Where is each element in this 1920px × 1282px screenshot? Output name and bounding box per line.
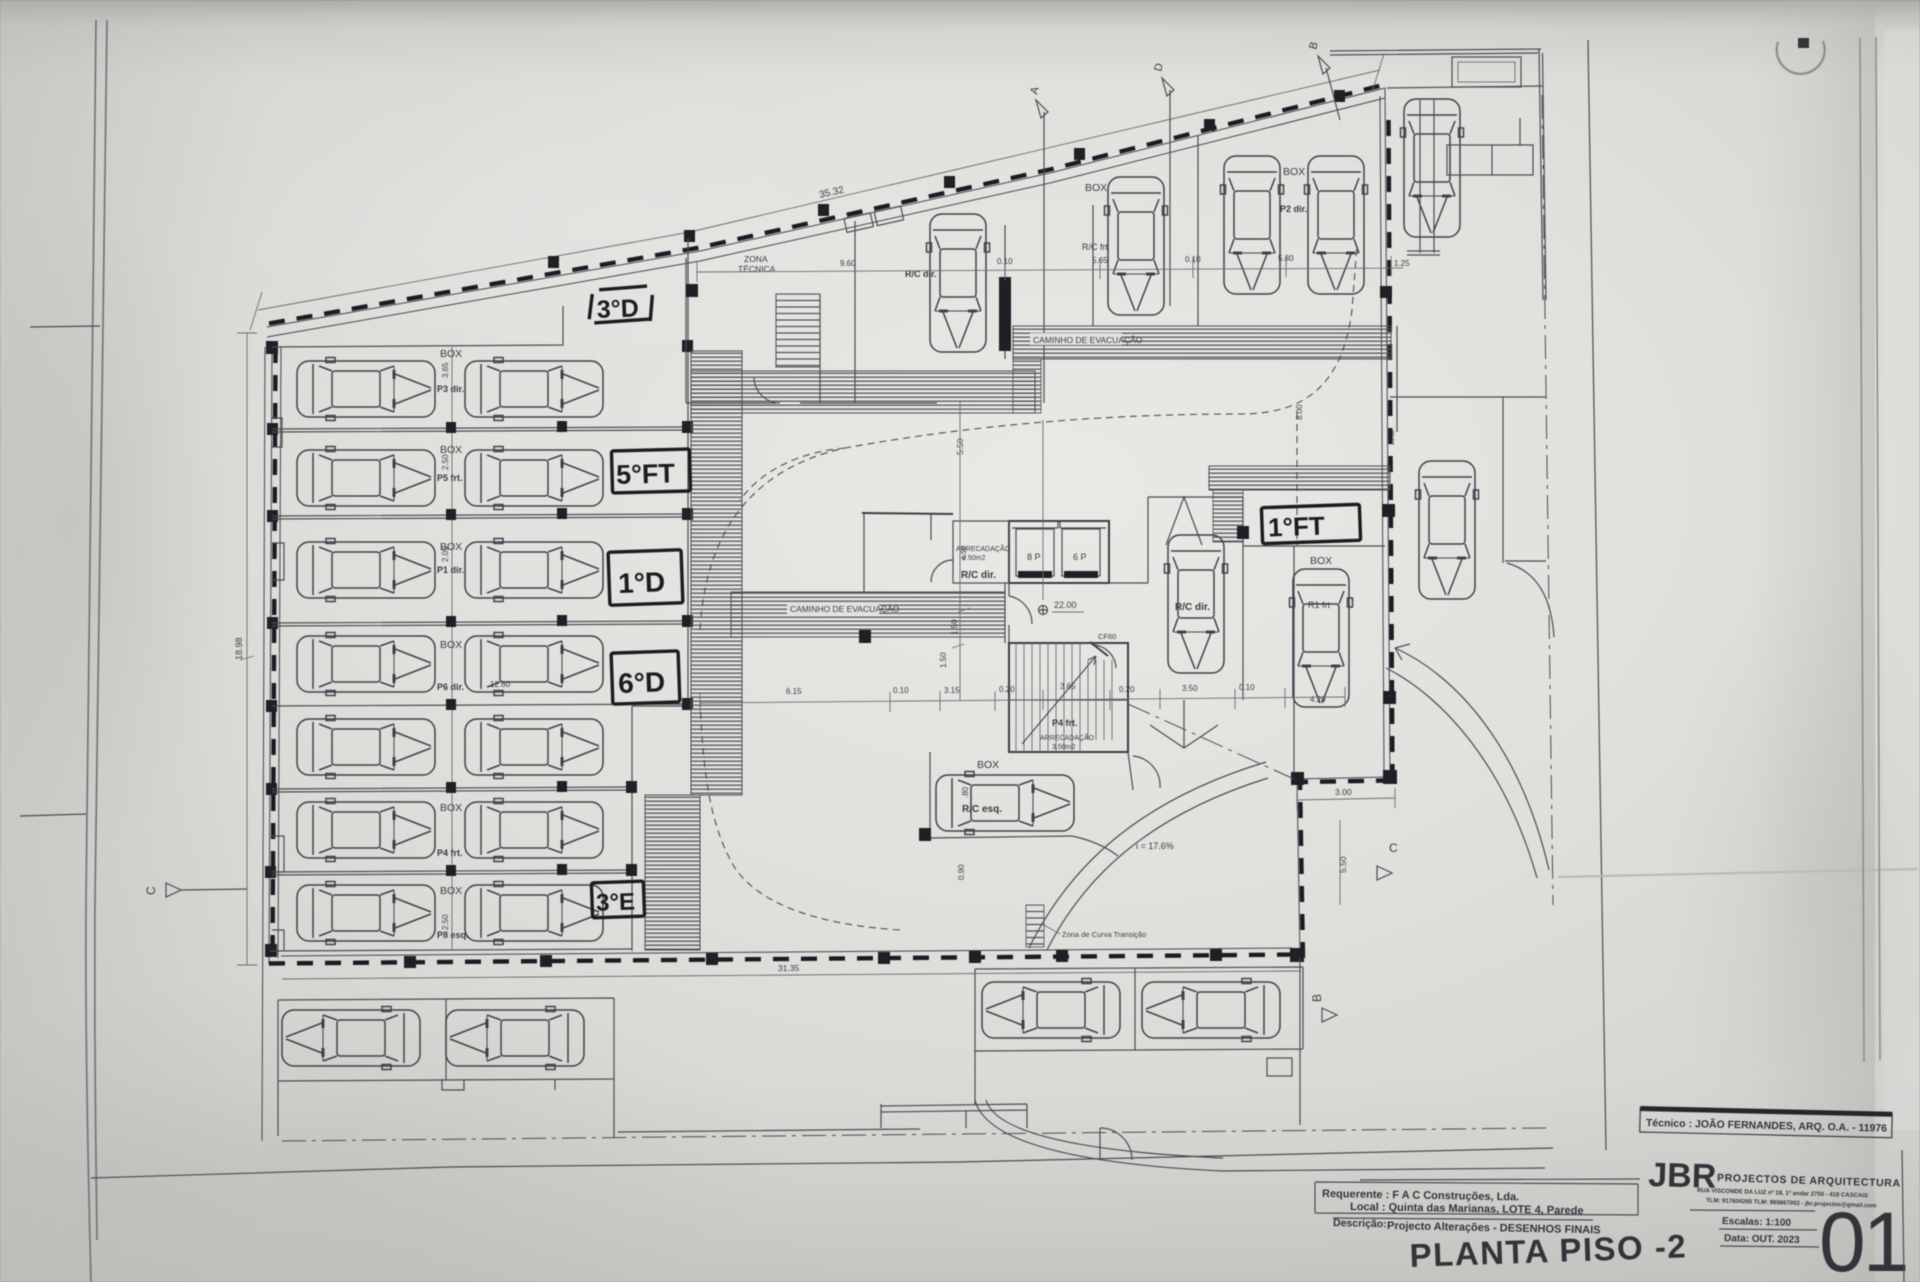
svg-text:BOX: BOX [440,639,462,651]
svg-text:3.65: 3.65 [1060,682,1076,691]
svg-text:BOX: BOX [1310,555,1332,567]
svg-text:ARRECADAÇÃO: ARRECADAÇÃO [1040,733,1095,742]
svg-text:Descrição:: Descrição: [1333,1217,1387,1230]
svg-text:8.00: 8.00 [1295,404,1304,420]
svg-text:0.10: 0.10 [997,257,1013,266]
svg-text:1.50: 1.50 [939,652,948,668]
svg-text:Data: OUT. 2023: Data: OUT. 2023 [1724,1233,1800,1246]
svg-text:P1 dir.: P1 dir. [437,565,464,575]
svg-text:0.20: 0.20 [1119,685,1135,694]
svg-text:Escalas: 1:100: Escalas: 1:100 [1722,1216,1792,1229]
svg-text:BOX: BOX [977,759,999,771]
svg-text:8 P: 8 P [1027,552,1041,562]
svg-text:2.05: 2.05 [441,546,450,562]
svg-text:R/C frt: R/C frt [1082,242,1108,252]
svg-text:0.10: 0.10 [1185,255,1201,264]
svg-text:BOX: BOX [1283,166,1305,178]
svg-text:2.50: 2.50 [441,454,450,470]
svg-text:P8 esq.: P8 esq. [437,930,469,940]
svg-text:CAMINHO DE EVACUAÇÃO: CAMINHO DE EVACUAÇÃO [1033,335,1143,345]
svg-text:i = 17.6%: i = 17.6% [1136,841,1174,851]
svg-text:R1 frt: R1 frt [1308,600,1331,610]
svg-text:0.20: 0.20 [999,685,1015,694]
svg-text:P3 dir.: P3 dir. [437,384,464,394]
svg-text:21.12: 21.12 [1390,429,1396,445]
svg-text:Zona de Curva Transição: Zona de Curva Transição [1062,930,1146,939]
svg-text:12.60: 12.60 [490,680,511,689]
svg-text:1.25: 1.25 [1394,259,1410,268]
svg-text:R/C esq.: R/C esq. [962,804,1002,815]
svg-text:C: C [144,886,158,895]
svg-text:3.15: 3.15 [944,686,960,695]
svg-text:4.20: 4.20 [1310,695,1326,704]
svg-text:1°D: 1°D [618,566,666,599]
svg-text:4.50: 4.50 [961,546,968,560]
svg-text:5°FT: 5°FT [616,458,676,490]
svg-text:1.50: 1.50 [950,619,959,635]
svg-text:5.50: 5.50 [1338,856,1348,873]
svg-text:BOX: BOX [1085,182,1107,194]
svg-text:3.50: 3.50 [1182,684,1198,693]
svg-text:ZONA: ZONA [744,254,768,264]
svg-text:01: 01 [1819,1195,1906,1282]
svg-text:R/C dir.: R/C dir. [1175,602,1210,613]
svg-text:0.10: 0.10 [1239,683,1255,692]
svg-text:3.00: 3.00 [1335,787,1352,797]
svg-text:18.98: 18.98 [234,637,244,660]
svg-text:3.50m2: 3.50m2 [1052,744,1075,751]
svg-text:R/C dir.: R/C dir. [961,570,996,581]
svg-text:1°FT: 1°FT [1268,511,1326,543]
svg-text:.80: .80 [961,786,970,798]
svg-text:3.65: 3.65 [441,362,450,378]
svg-text:BOX: BOX [440,802,462,814]
svg-text:0.90: 0.90 [957,864,966,880]
svg-text:P4 frt.: P4 frt. [1052,718,1078,728]
svg-text:TÉCNICA: TÉCNICA [738,264,776,274]
svg-text:C: C [1389,841,1398,855]
svg-text:B: B [1310,994,1324,1002]
svg-text:31.35: 31.35 [778,963,800,973]
svg-text:3°E: 3°E [596,888,636,916]
svg-text:5.80: 5.80 [1278,254,1294,263]
svg-text:9.60: 9.60 [840,259,856,268]
svg-text:P2 dir.: P2 dir. [1280,204,1307,214]
svg-text:5.65: 5.65 [1092,256,1108,265]
svg-text:P6 dir.: P6 dir. [437,682,464,692]
svg-text:BOX: BOX [440,348,462,360]
svg-text:P5 frt.: P5 frt. [437,473,463,483]
svg-text:6°D: 6°D [618,666,666,699]
svg-text:BOX: BOX [440,885,462,897]
svg-text:3°D: 3°D [596,294,639,323]
svg-text:6 P: 6 P [1073,552,1087,562]
svg-text:P4 frt.: P4 frt. [437,848,463,858]
svg-text:22.00: 22.00 [1054,600,1077,610]
svg-text:0.10: 0.10 [893,686,909,695]
svg-text:BOX: BOX [440,444,462,456]
svg-text:CF60: CF60 [1098,632,1116,641]
svg-text:6.15: 6.15 [786,687,802,696]
svg-text:CAMINHO DE EVACUAÇÃO: CAMINHO DE EVACUAÇÃO [790,604,900,614]
svg-text:2.50: 2.50 [441,914,450,930]
